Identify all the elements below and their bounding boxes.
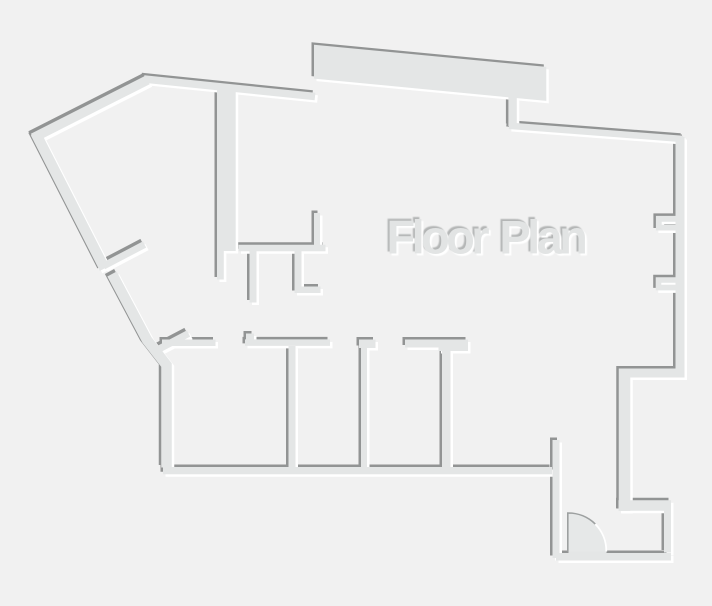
svg-text:Floor Plan: Floor Plan	[387, 211, 586, 264]
